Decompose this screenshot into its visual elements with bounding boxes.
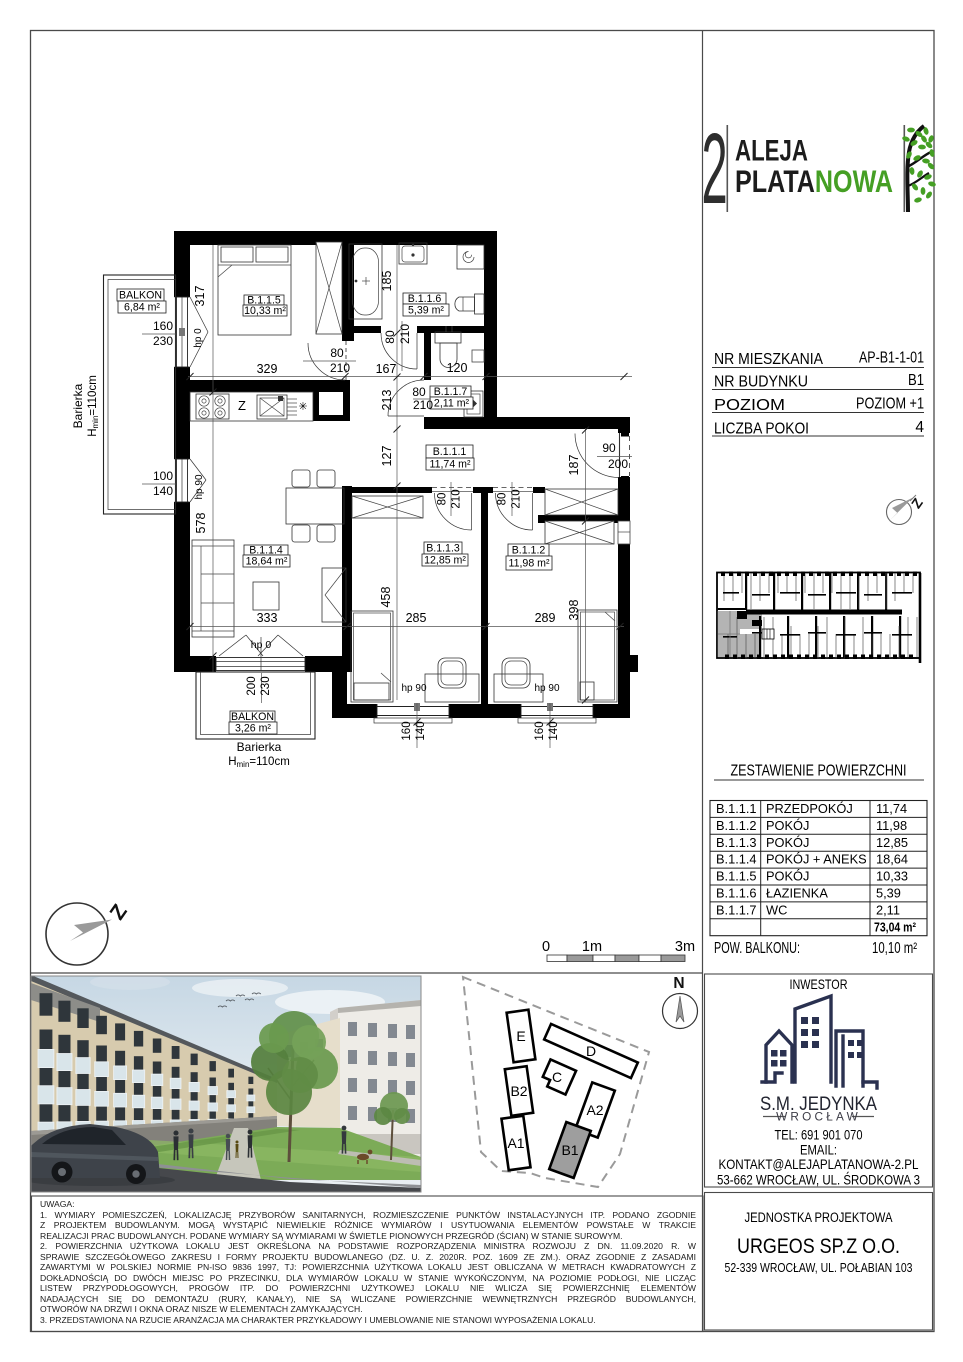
svg-text:167: 167 xyxy=(376,362,397,376)
svg-text:B.1.1.7: B.1.1.7 xyxy=(716,902,757,917)
svg-text:ZESTAWIENIE POWIERZCHNI: ZESTAWIENIE POWIERZCHNI xyxy=(731,763,907,780)
svg-text:230: 230 xyxy=(153,334,173,348)
svg-text:B.1.1.6: B.1.1.6 xyxy=(408,293,442,305)
svg-text:185: 185 xyxy=(380,271,394,292)
svg-text:POKÓJ: POKÓJ xyxy=(766,869,809,884)
svg-text:11,74 m²: 11,74 m² xyxy=(429,459,470,471)
svg-text:PRZEDPOKÓJ: PRZEDPOKÓJ xyxy=(766,801,853,816)
svg-text:Z: Z xyxy=(238,398,246,413)
svg-text:160: 160 xyxy=(401,721,413,740)
svg-text:B2: B2 xyxy=(510,1083,527,1099)
svg-text:18,64: 18,64 xyxy=(876,852,908,867)
svg-text:B.1.1.3: B.1.1.3 xyxy=(716,835,757,850)
svg-text:WROCŁAW: WROCŁAW xyxy=(776,1110,861,1124)
svg-text:210: 210 xyxy=(398,324,412,344)
svg-text:127: 127 xyxy=(380,446,394,467)
svg-text:73,04 m²: 73,04 m² xyxy=(874,920,916,935)
svg-text:✳: ✳ xyxy=(298,401,307,413)
svg-text:Barierka: Barierka xyxy=(237,740,282,754)
svg-text:POZIOM +1: POZIOM +1 xyxy=(856,396,924,413)
svg-text:Hmin=110cm: Hmin=110cm xyxy=(87,375,100,437)
svg-text:160: 160 xyxy=(534,721,546,740)
svg-text:11,74: 11,74 xyxy=(876,801,907,816)
svg-text:BALKON: BALKON xyxy=(231,711,274,723)
svg-text:213: 213 xyxy=(380,390,394,411)
svg-text:140: 140 xyxy=(415,721,427,740)
svg-text:578: 578 xyxy=(194,513,208,534)
svg-text:12,85: 12,85 xyxy=(876,835,908,850)
svg-text:B.1.1.3: B.1.1.3 xyxy=(426,543,460,555)
svg-text:hp 0: hp 0 xyxy=(251,639,272,651)
svg-text:3m: 3m xyxy=(675,939,695,955)
svg-text:EMAIL:: EMAIL: xyxy=(800,1143,837,1158)
svg-text:187: 187 xyxy=(567,455,581,476)
svg-text:10,33: 10,33 xyxy=(876,869,908,884)
svg-text:POKÓJ + ANEKS: POKÓJ + ANEKS xyxy=(766,852,867,867)
svg-text:90: 90 xyxy=(602,441,616,455)
svg-text:JEDNOSTKA PROJEKTOWA: JEDNOSTKA PROJEKTOWA xyxy=(745,1210,893,1226)
svg-text:200: 200 xyxy=(246,676,258,695)
svg-text:INWESTOR: INWESTOR xyxy=(790,977,848,992)
svg-text:A1: A1 xyxy=(507,1135,524,1151)
svg-text:1m: 1m xyxy=(582,939,602,955)
svg-text:210: 210 xyxy=(413,398,433,412)
svg-text:B.1.1.1: B.1.1.1 xyxy=(433,446,467,458)
svg-text:6,84 m²: 6,84 m² xyxy=(124,302,160,314)
svg-text:POKÓJ: POKÓJ xyxy=(766,818,809,833)
svg-text:POKÓJ: POKÓJ xyxy=(766,835,809,850)
svg-text:D: D xyxy=(586,1043,596,1059)
svg-text:Barierka: Barierka xyxy=(71,383,85,428)
svg-text:210: 210 xyxy=(451,489,463,508)
svg-text:ŁAZIENKA: ŁAZIENKA xyxy=(766,886,828,901)
svg-text:140: 140 xyxy=(548,721,560,740)
svg-text:B.1.1.5: B.1.1.5 xyxy=(716,869,757,884)
svg-text:BALKON: BALKON xyxy=(119,290,162,302)
svg-text:200: 200 xyxy=(608,457,628,471)
svg-text:80: 80 xyxy=(412,385,426,399)
svg-text:2,11: 2,11 xyxy=(876,902,900,917)
svg-text:B1: B1 xyxy=(908,372,924,389)
svg-text:B.1.1.6: B.1.1.6 xyxy=(716,886,757,901)
svg-text:3,26 m²: 3,26 m² xyxy=(235,723,271,735)
svg-text:B.1.1.2: B.1.1.2 xyxy=(716,818,757,833)
svg-text:B.1.1.1: B.1.1.1 xyxy=(716,801,757,816)
svg-text:160: 160 xyxy=(153,319,173,333)
svg-text:URGEOS SP.Z O.O.: URGEOS SP.Z O.O. xyxy=(737,1234,900,1258)
svg-text:53-662 WROCŁAW, UL. ŚRODKOWA 3: 53-662 WROCŁAW, UL. ŚRODKOWA 3 xyxy=(717,1171,920,1188)
svg-text:11,98: 11,98 xyxy=(876,818,907,833)
svg-text:hp 90: hp 90 xyxy=(534,683,559,694)
svg-text:B.1.1.4: B.1.1.4 xyxy=(716,852,757,867)
svg-text:hp 0: hp 0 xyxy=(193,328,204,348)
svg-text:285: 285 xyxy=(406,611,427,625)
svg-text:POW. BALKONU:: POW. BALKONU: xyxy=(714,940,800,957)
svg-text:B.1.1.2: B.1.1.2 xyxy=(512,545,546,557)
svg-text:5,39 m²: 5,39 m² xyxy=(408,305,444,317)
svg-text:LICZBA POKOI: LICZBA POKOI xyxy=(714,421,809,438)
svg-text:0: 0 xyxy=(542,939,550,955)
svg-text:WC: WC xyxy=(766,902,787,917)
svg-text:NR BUDYNKU: NR BUDYNKU xyxy=(714,374,808,391)
svg-text:80: 80 xyxy=(383,330,397,344)
svg-text:80: 80 xyxy=(330,346,344,360)
svg-text:317: 317 xyxy=(193,286,207,307)
svg-text:hp 90: hp 90 xyxy=(401,683,426,694)
svg-text:C: C xyxy=(552,1069,562,1085)
svg-text:230: 230 xyxy=(260,676,272,695)
svg-text:AP-B1-1-01: AP-B1-1-01 xyxy=(859,350,924,367)
svg-text:11,98 m²: 11,98 m² xyxy=(508,558,549,570)
svg-text:140: 140 xyxy=(153,484,173,498)
svg-text:2,11 m²: 2,11 m² xyxy=(434,398,470,410)
svg-text:TEL: 691 901 070: TEL: 691 901 070 xyxy=(775,1128,863,1143)
svg-text:333: 333 xyxy=(257,611,278,625)
svg-text:2: 2 xyxy=(702,112,728,225)
svg-text:120: 120 xyxy=(447,361,468,375)
svg-text:POZIOM: POZIOM xyxy=(714,397,785,414)
svg-text:329: 329 xyxy=(257,362,278,376)
svg-text:N: N xyxy=(673,975,684,992)
svg-text:Hmin=110cm: Hmin=110cm xyxy=(228,756,290,769)
svg-text:NR MIESZKANIA: NR MIESZKANIA xyxy=(714,351,824,368)
svg-text:B1: B1 xyxy=(561,1142,578,1158)
svg-text:12,85 m²: 12,85 m² xyxy=(424,555,466,567)
svg-text:4: 4 xyxy=(915,419,924,436)
svg-text:E: E xyxy=(516,1028,525,1044)
svg-text:10,10 m²: 10,10 m² xyxy=(872,940,917,957)
svg-text:5,39: 5,39 xyxy=(876,886,901,901)
svg-text:80: 80 xyxy=(497,493,509,506)
svg-text:A2: A2 xyxy=(586,1102,603,1118)
svg-text:100: 100 xyxy=(153,469,173,483)
svg-text:18,64 m²: 18,64 m² xyxy=(246,556,288,568)
svg-text:hp 90: hp 90 xyxy=(194,474,205,499)
svg-text:PLATANOWA: PLATANOWA xyxy=(735,163,893,199)
svg-text:B.1.1.7: B.1.1.7 xyxy=(434,386,468,398)
svg-text:398: 398 xyxy=(567,600,581,621)
svg-text:289: 289 xyxy=(535,611,556,625)
svg-text:210: 210 xyxy=(330,361,350,375)
svg-text:10,33 m²: 10,33 m² xyxy=(244,305,286,317)
svg-text:52-339 WROCŁAW, UL. POŁABIAN 1: 52-339 WROCŁAW, UL. POŁABIAN 103 xyxy=(725,1260,913,1275)
svg-text:80: 80 xyxy=(437,493,449,506)
svg-text:KONTAKT@ALEJAPLATANOWA-2.PL: KONTAKT@ALEJAPLATANOWA-2.PL xyxy=(719,1157,919,1172)
svg-text:458: 458 xyxy=(379,587,393,608)
